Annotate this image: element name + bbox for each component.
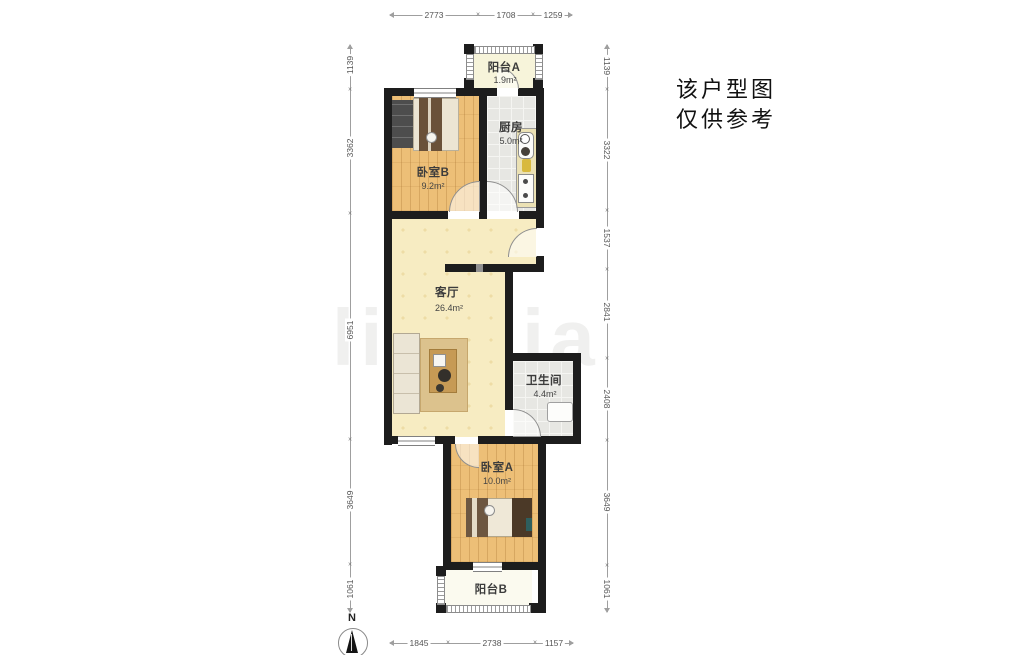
arrow-icon — [604, 44, 610, 49]
dim-tick: × — [348, 437, 352, 444]
kitchen-label: 厨房 — [499, 119, 523, 135]
dim-bottom-2: 2738 — [481, 638, 504, 648]
dim-tick: × — [348, 562, 352, 569]
wall — [443, 562, 473, 570]
living-room-window — [398, 436, 435, 446]
bed-a-teal-pillow — [526, 518, 532, 531]
balcony-a-area: 1.9m² — [493, 75, 516, 85]
disclaimer-line1: 该户型图 — [676, 76, 776, 106]
wall — [505, 361, 513, 410]
balcony-a-label: 阳台A — [488, 59, 521, 75]
bed-a-decor — [484, 505, 495, 516]
arrow-icon — [604, 608, 610, 613]
wall — [505, 353, 581, 361]
dim-tick: × — [605, 356, 609, 363]
dim-tick: × — [605, 208, 609, 215]
wall — [519, 211, 544, 219]
compass-needle-icon — [346, 630, 358, 653]
wall — [478, 436, 581, 444]
dim-tick: × — [348, 87, 352, 94]
dim-top-2: 1708 — [495, 10, 518, 20]
dim-bottom-1: 1845 — [408, 638, 431, 648]
bathroom-label: 卫生间 — [526, 372, 562, 388]
dim-right-4: 2841 — [602, 301, 612, 324]
bedroom-a-area: 10.0m² — [483, 476, 511, 486]
disclaimer-note: 该户型图 仅供参考 — [676, 76, 776, 136]
arrow-icon — [568, 12, 573, 18]
dim-left-1: 1139 — [345, 54, 355, 76]
sofa — [393, 333, 420, 414]
dim-left-3: 6951 — [345, 319, 355, 342]
bed-a-runner — [472, 498, 477, 537]
bathtub — [547, 402, 573, 422]
dim-tick: × — [531, 12, 535, 19]
dim-line-right — [607, 45, 608, 612]
dim-top-1: 2773 — [423, 10, 446, 20]
dim-right-7: 1061 — [602, 578, 612, 601]
bathroom-area: 4.4m² — [533, 389, 556, 399]
balcony-post — [464, 44, 474, 54]
wall — [573, 353, 581, 444]
balcony-post — [436, 566, 446, 576]
floor-plan-page: lianjia — [0, 0, 1009, 655]
dim-tick: × — [348, 211, 352, 218]
living-room-label: 客厅 — [435, 284, 459, 300]
bedroom-b-label: 卧室B — [417, 164, 450, 180]
stove-burner-1 — [523, 179, 528, 184]
bed-b-runner — [428, 98, 431, 151]
kitchen-basin-icon — [521, 147, 530, 156]
balcony-b-railing-left — [437, 576, 445, 605]
dim-left-5: 1061 — [345, 578, 355, 601]
dim-tick: × — [533, 640, 537, 647]
dim-right-2: 3322 — [602, 139, 612, 162]
balcony-b-label: 阳台B — [475, 581, 508, 597]
wall-column — [476, 264, 483, 272]
wall — [443, 436, 451, 568]
dim-tick: × — [605, 438, 609, 445]
dim-right-6: 3649 — [602, 491, 612, 514]
dim-right-1: 1139 — [602, 55, 612, 77]
stove-burner-2 — [523, 193, 528, 198]
living-room-area: 26.4m² — [435, 303, 463, 313]
wall — [538, 436, 546, 568]
dim-right-5: 2408 — [602, 388, 612, 411]
table-tray — [433, 354, 446, 367]
arrow-icon — [569, 640, 574, 646]
bedroom-b-area: 9.2m² — [421, 181, 444, 191]
dim-top-3: 1259 — [542, 10, 565, 20]
wall — [384, 211, 448, 219]
arrow-icon — [389, 640, 394, 646]
wall — [479, 96, 487, 211]
dim-right-3: 1537 — [602, 227, 612, 250]
dim-left-4: 3649 — [345, 489, 355, 512]
wall — [505, 264, 513, 361]
kitchen-chopping-board — [522, 159, 531, 172]
arrow-icon — [347, 44, 353, 49]
kitchen-area: 5.0m² — [499, 136, 522, 146]
compass-needle-highlight — [351, 634, 352, 651]
wall — [445, 264, 544, 272]
balcony-a-railing-right — [535, 54, 543, 80]
balcony-a-railing-left — [466, 54, 474, 80]
balcony-a-railing-top — [474, 46, 535, 54]
bed-b-decor — [426, 132, 437, 143]
bedroom-a-label: 卧室A — [481, 459, 514, 475]
balcony-b-railing-bottom — [446, 605, 531, 613]
dim-left-2: 3362 — [345, 137, 355, 160]
bed-a-blanket — [466, 498, 488, 537]
disclaimer-line2: 仅供参考 — [676, 106, 776, 136]
dim-tick: × — [605, 87, 609, 94]
wall — [479, 211, 487, 219]
arrow-icon — [389, 12, 394, 18]
dim-tick: × — [605, 563, 609, 570]
wall — [536, 88, 544, 228]
bedroom-b-window — [414, 88, 456, 98]
table-pot — [436, 384, 444, 392]
wall — [538, 568, 546, 613]
dim-tick: × — [446, 640, 450, 647]
dim-tick: × — [476, 12, 480, 19]
dim-tick: × — [605, 267, 609, 274]
wall — [384, 96, 392, 445]
dim-bottom-3: 1157 — [543, 638, 565, 648]
wardrobe — [392, 100, 413, 148]
balcony-b-sliding-door — [473, 562, 502, 572]
compass-north-label: N — [348, 612, 356, 624]
table-plant — [438, 369, 451, 382]
